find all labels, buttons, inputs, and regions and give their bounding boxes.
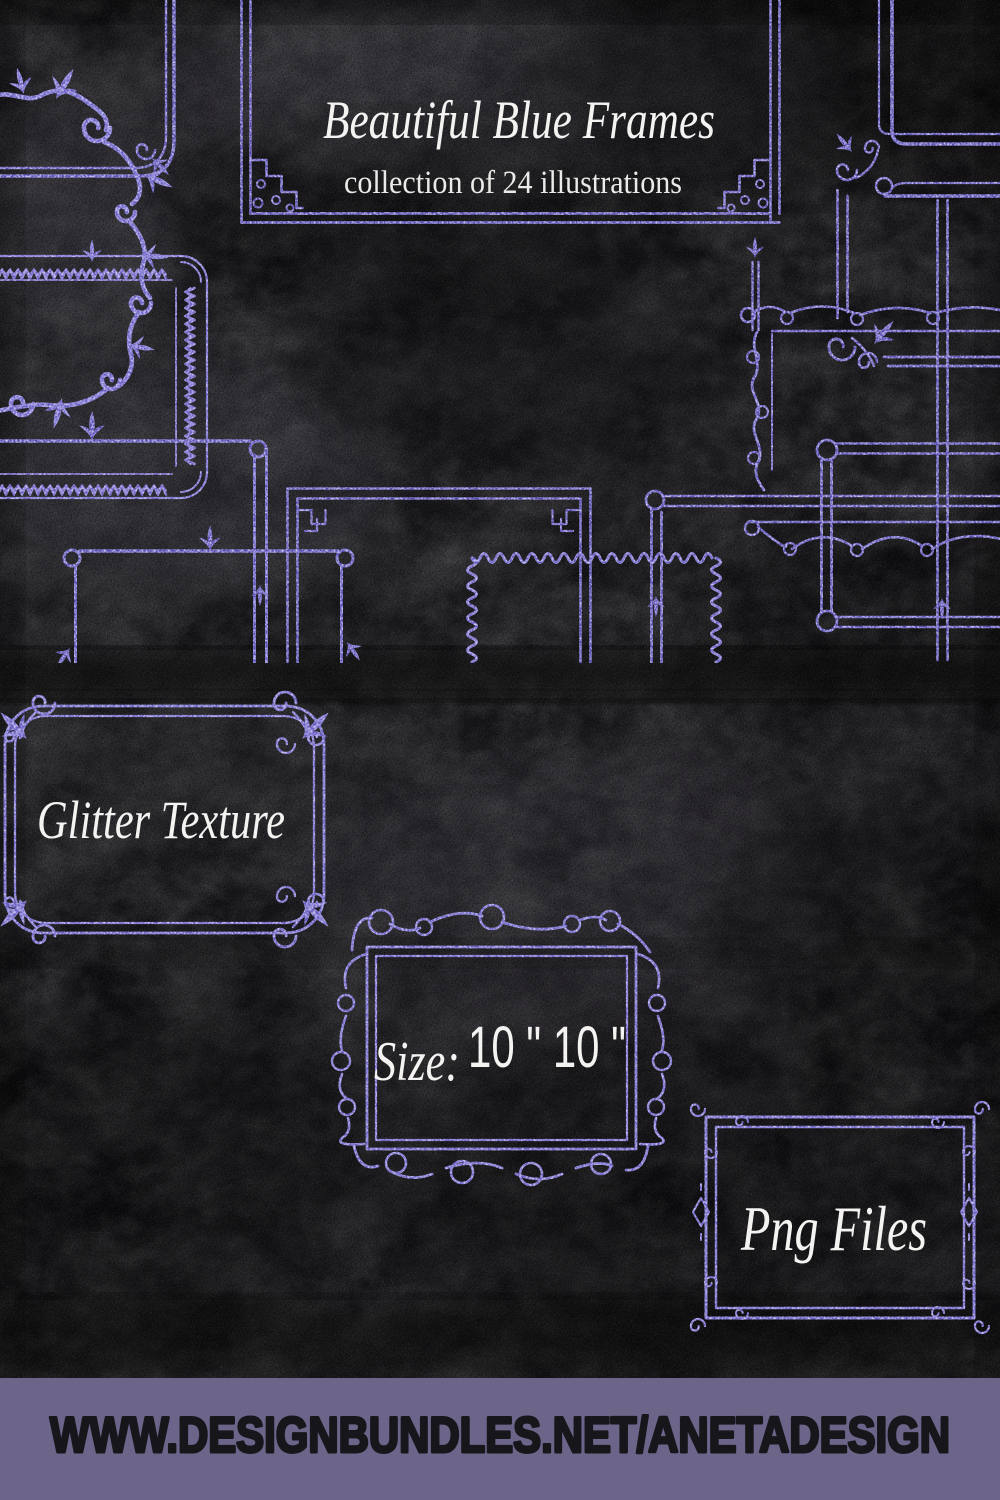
svg-text:WWW.DESIGNBUNDLES.NET/ANETADES: WWW.DESIGNBUNDLES.NET/ANETADESIGN xyxy=(50,1407,950,1463)
svg-text:Beautiful Blue Frames: Beautiful Blue Frames xyxy=(323,90,715,150)
svg-text:collection of 24 illustrations: collection of 24 illustrations xyxy=(344,165,682,201)
svg-text:10 " 10 ": 10 " 10 " xyxy=(468,1015,626,1080)
svg-text:Glitter Texture: Glitter Texture xyxy=(37,790,285,850)
svg-text:Size:: Size: xyxy=(374,1031,460,1093)
svg-text:Png Files: Png Files xyxy=(740,1193,927,1264)
